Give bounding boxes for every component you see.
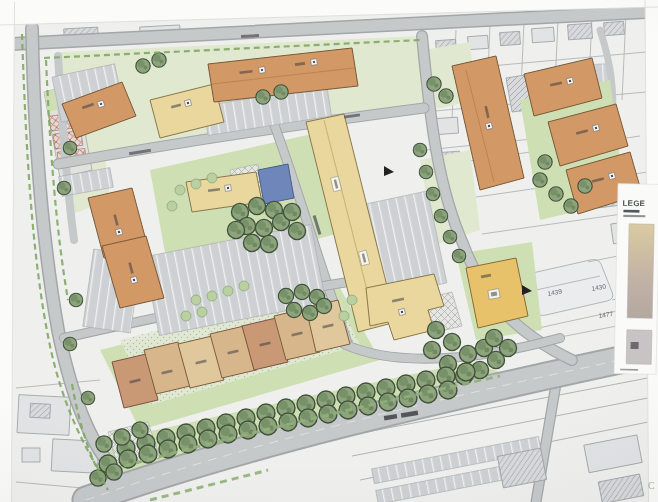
site-plan-drawing: 1439 1430 1477 LEGE C (0, 0, 658, 502)
legend-text-smudge-2 (623, 215, 645, 218)
blue-feature-square (258, 164, 294, 204)
legend-letter-smudge (631, 342, 639, 349)
legend-title: LEGE (622, 199, 645, 208)
legend-swatch-2 (626, 330, 652, 365)
legend-text-smudge-1 (623, 210, 639, 213)
site-plan-photo: 1439 1430 1477 LEGE C (0, 0, 658, 502)
legend-swatch-gradient (627, 224, 654, 319)
legend-panel: LEGE (614, 184, 658, 375)
margin-letter: C (648, 480, 655, 491)
